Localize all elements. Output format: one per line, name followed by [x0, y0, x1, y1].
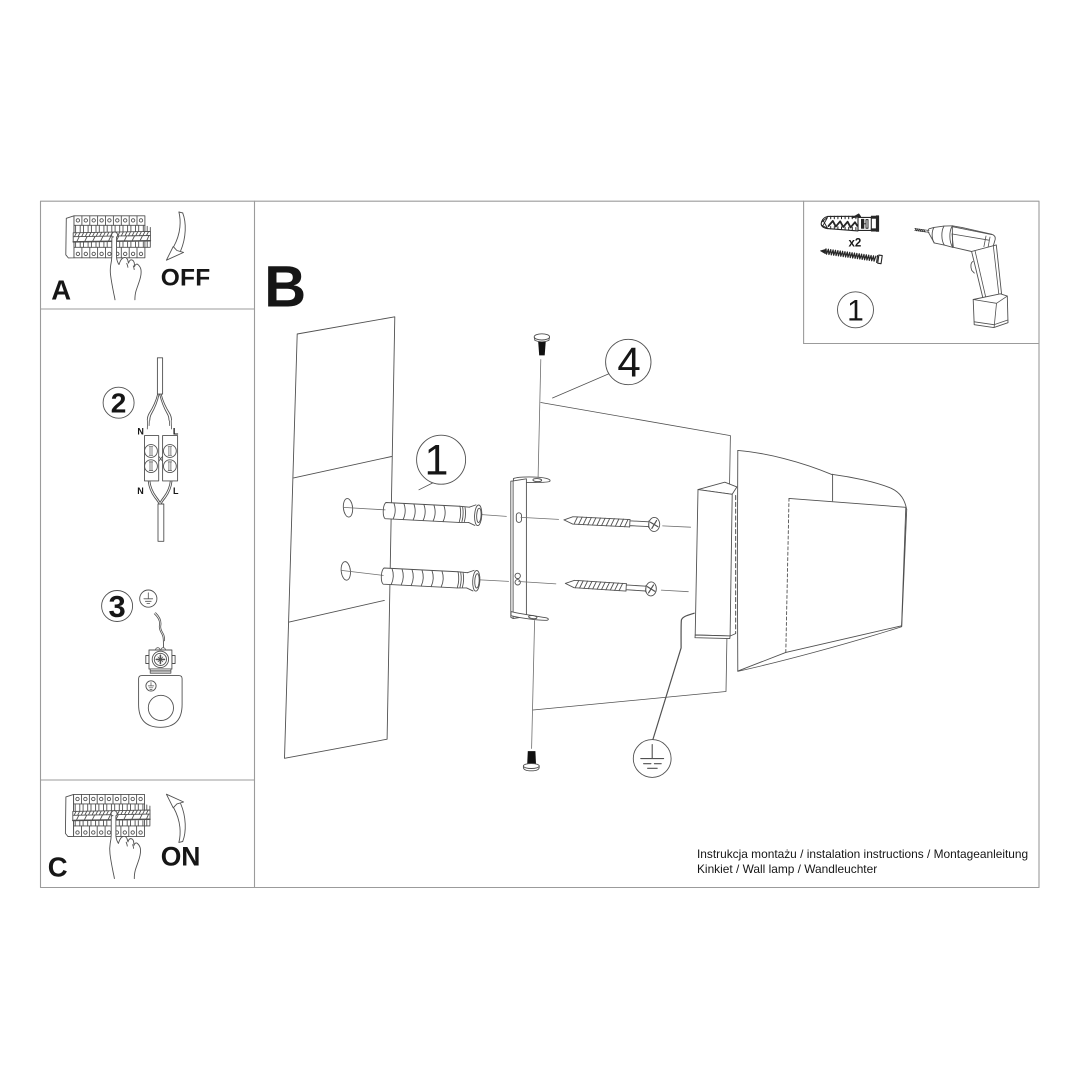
svg-text:1: 1 — [847, 294, 864, 327]
svg-text:x2: x2 — [849, 237, 862, 249]
svg-text:ON: ON — [161, 842, 201, 872]
svg-text:Kinkiet / Wall lamp / Wandleuc: Kinkiet / Wall lamp / Wandleuchter — [697, 862, 877, 876]
svg-text:Instrukcja montażu / instalati: Instrukcja montażu / instalation instruc… — [697, 847, 1028, 861]
svg-text:OFF: OFF — [161, 265, 211, 292]
svg-text:N: N — [137, 486, 144, 496]
svg-text:4: 4 — [617, 339, 640, 386]
svg-text:3: 3 — [108, 589, 125, 624]
svg-text:A: A — [51, 275, 71, 306]
svg-text:B: B — [264, 255, 306, 320]
svg-text:2: 2 — [111, 388, 127, 419]
svg-text:1: 1 — [425, 437, 449, 485]
svg-text:L: L — [173, 426, 179, 436]
svg-text:L: L — [173, 486, 179, 496]
svg-text:C: C — [48, 852, 68, 883]
svg-text:N: N — [137, 426, 144, 436]
